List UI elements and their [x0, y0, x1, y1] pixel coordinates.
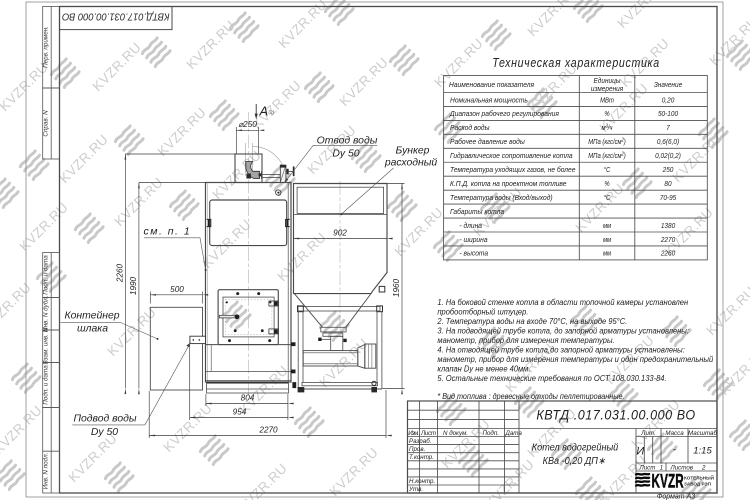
- svg-text:Пров.: Пров.: [409, 446, 425, 453]
- svg-text:804: 804: [241, 394, 255, 403]
- svg-text:500: 500: [170, 285, 184, 294]
- svg-text:мм: мм: [603, 236, 611, 244]
- svg-text:KVZR.RU: KVZR.RU: [0, 403, 45, 457]
- svg-text:KVZR.RU: KVZR.RU: [704, 284, 750, 338]
- svg-text:- высота: - высота: [459, 249, 488, 257]
- svg-text:Температура уходящих газов, не: Температура уходящих газов, не более: [450, 166, 575, 174]
- svg-text:Справ. N: Справ. N: [43, 110, 50, 137]
- svg-text:Техническая характеристика: Техническая характеристика: [492, 56, 660, 70]
- svg-text:Dy 50: Dy 50: [91, 427, 118, 438]
- svg-text:(2): (2): [269, 110, 275, 115]
- svg-text:Формат А3: Формат А3: [657, 494, 695, 500]
- svg-text:Масса: Масса: [665, 430, 684, 437]
- svg-text:Наименование показателя: Наименование показателя: [449, 81, 534, 89]
- svg-text:KVZR.RU: KVZR.RU: [184, 18, 238, 72]
- svg-text:50-100: 50-100: [658, 111, 678, 119]
- svg-text:Контейнер: Контейнер: [64, 311, 119, 322]
- svg-text:70-95: 70-95: [660, 195, 677, 203]
- svg-text:Номинальная мощность: Номинальная мощность: [450, 96, 528, 104]
- svg-text:KVZR.RU: KVZR.RU: [573, 181, 627, 235]
- svg-text:Бункер: Бункер: [396, 146, 430, 157]
- svg-text:°С: °С: [604, 193, 611, 202]
- svg-text:Взам. инв. N: Взам. инв. N: [43, 327, 50, 364]
- svg-text:Н.контр.: Н.контр.: [409, 478, 435, 485]
- svg-text:расходный: расходный: [384, 158, 437, 169]
- svg-text:Лит.: Лит.: [640, 430, 656, 437]
- svg-text:KVZR.RU: KVZR.RU: [0, 280, 34, 334]
- svg-text:Габариты котла: Габариты котла: [450, 208, 504, 216]
- svg-text:- длина: - длина: [459, 221, 482, 229]
- svg-text:Подвод воды: Подвод воды: [73, 414, 136, 425]
- svg-text:2270: 2270: [660, 236, 675, 244]
- svg-text:4. На отводящей трубе котла,д: 4. На отводящей трубе котла,до запорной …: [437, 345, 684, 354]
- svg-text:Температура воды (Вход/выход): Температура воды (Вход/выход): [450, 194, 553, 202]
- svg-text:КВа -0,20 ДП∗: КВа -0,20 ДП∗: [543, 456, 606, 468]
- svg-text:Отвод воды: Отвод воды: [317, 136, 378, 147]
- svg-text:Подп. и дата: Подп. и дата: [42, 255, 50, 295]
- svg-text:KVZR.RU: KVZR.RU: [337, 55, 391, 109]
- svg-text:KVZR.RU: KVZR.RU: [276, 0, 330, 51]
- svg-text:0,02(0,2): 0,02(0,2): [655, 153, 681, 161]
- svg-text:KVZR.RU: KVZR.RU: [236, 461, 290, 500]
- svg-text:1380: 1380: [661, 222, 675, 230]
- svg-text:шлака: шлака: [77, 324, 108, 335]
- svg-text:Диапазон рабочего регулировани: Диапазон рабочего регулирования: [449, 110, 559, 118]
- svg-text:KVZR.RU: KVZR.RU: [57, 132, 111, 186]
- svg-text:Масштаб: Масштаб: [688, 430, 717, 437]
- svg-text:KVZR.RU: KVZR.RU: [275, 230, 329, 284]
- svg-text:КВТД .017.031.00.000 ВО: КВТД .017.031.00.000 ВО: [536, 407, 695, 423]
- svg-text:KVZR.RU: KVZR.RU: [155, 105, 209, 159]
- svg-text:- ширина: - ширина: [459, 235, 487, 243]
- svg-text:Расход воды: Расход воды: [450, 124, 490, 132]
- svg-text:МВт: МВт: [600, 97, 614, 105]
- svg-text:Котел водогрейный: Котел водогрейный: [532, 442, 619, 454]
- svg-text:2270: 2270: [258, 426, 278, 435]
- svg-text:Dy 50: Dy 50: [332, 149, 359, 160]
- svg-text:мм: мм: [603, 250, 611, 258]
- svg-text:2260: 2260: [116, 263, 125, 283]
- svg-text:Рабочее давление воды: Рабочее давление воды: [450, 138, 525, 146]
- svg-text:Перв. примен.: Перв. примен.: [43, 26, 50, 68]
- svg-text:KVZR.RU: KVZR.RU: [317, 336, 371, 390]
- svg-text:7: 7: [666, 125, 671, 133]
- svg-text:KVZR.RU: KVZR.RU: [327, 445, 381, 499]
- svg-text:N докум.: N докум.: [443, 430, 468, 437]
- svg-text:2: 2: [701, 464, 706, 471]
- svg-text:KVZR.RU: KVZR.RU: [17, 200, 71, 254]
- svg-text:250: 250: [662, 167, 674, 175]
- svg-text:Инв. N подл.: Инв. N подл.: [42, 453, 50, 490]
- svg-text:КВТД.017.031.00.000 ВО: КВТД.017.031.00.000 ВО: [62, 10, 170, 22]
- svg-text:KVZR.RU: KVZR.RU: [200, 217, 254, 271]
- svg-text:МПа (кгс/см2): МПа (кгс/см2): [588, 137, 626, 146]
- svg-text:Подп. и дата: Подп. и дата: [42, 365, 50, 405]
- svg-text:измерения: измерения: [591, 86, 624, 94]
- svg-text:0,20: 0,20: [662, 97, 675, 105]
- svg-text:KVZR.RU: KVZR.RU: [66, 431, 120, 485]
- svg-text:2. Температура воды на входе: 2. Температура воды на входе 70°С, на вы…: [436, 317, 627, 326]
- svg-text:954: 954: [233, 408, 247, 417]
- svg-text:КОТЕЛЬНЫЙ: КОТЕЛЬНЫЙ: [684, 474, 714, 481]
- svg-text:0,6(6,0): 0,6(6,0): [657, 139, 679, 147]
- svg-text:Дата: Дата: [505, 430, 523, 437]
- svg-text:И: И: [636, 446, 644, 458]
- svg-text:Утв.: Утв.: [408, 486, 423, 493]
- svg-text:1:15: 1:15: [693, 446, 712, 457]
- svg-text:2260: 2260: [660, 250, 675, 258]
- svg-text:-: -: [673, 445, 676, 456]
- svg-text:Изм.: Изм.: [408, 430, 419, 437]
- svg-text:1990: 1990: [129, 276, 138, 295]
- svg-text:KVZR: KVZR: [652, 471, 684, 493]
- svg-text:К.П.Д. котла на проектном топл: К.П.Д. котла на проектном топливе: [450, 180, 567, 188]
- svg-text:5. Остальные технические треб: 5. Остальные технические требования по О…: [437, 373, 666, 382]
- svg-text:Значение: Значение: [654, 82, 682, 90]
- svg-text:МПа (кгс/см2): МПа (кгс/см2): [588, 151, 626, 160]
- svg-text:пробоотборный штуцер.: пробоотборный штуцер.: [437, 307, 528, 316]
- svg-text:ЗАВОД РЭП: ЗАВОД РЭП: [684, 482, 711, 487]
- svg-text:1960: 1960: [392, 278, 401, 297]
- svg-text:манометр, прибор для измерени: манометр, прибор для измерения температу…: [437, 355, 713, 364]
- svg-text:Лист: Лист: [420, 430, 436, 437]
- svg-text:Подп.: Подп.: [483, 430, 499, 437]
- svg-text:Т.контр.: Т.контр.: [409, 454, 434, 461]
- svg-text:902: 902: [333, 228, 347, 237]
- svg-text:80: 80: [664, 181, 671, 189]
- svg-text:м3/ч: м3/ч: [602, 123, 613, 132]
- svg-text:Инв. N дубл.: Инв. N дубл.: [42, 295, 50, 331]
- svg-text:3. На подводящей трубе котла,: 3. На подводящей трубе котла, до запорно…: [437, 326, 689, 335]
- svg-text:см. п. 1: см. п. 1: [144, 226, 192, 238]
- svg-text:манометр, прибор для измерения: манометр, прибор для измерения температу…: [437, 336, 614, 345]
- svg-text:KVZR.RU: KVZR.RU: [250, 78, 304, 132]
- svg-text:KVZR.RU: KVZR.RU: [615, 0, 669, 31]
- svg-text:KVZR.RU: KVZR.RU: [90, 40, 144, 94]
- svg-text:мм: мм: [603, 222, 611, 230]
- svg-text:KVZR.RU: KVZR.RU: [717, 344, 750, 398]
- svg-text:⌀250: ⌀250: [238, 120, 257, 129]
- svg-text:Гидравлическое сопротивление к: Гидравлическое сопротивление котла: [450, 152, 573, 160]
- svg-text:1. На боковой стенке котла в: 1. На боковой стенке котла в области топ…: [437, 298, 688, 307]
- svg-text:А: А: [259, 104, 269, 119]
- svg-text:клапан Dу не менее 40мм.: клапан Dу не менее 40мм.: [437, 364, 530, 373]
- svg-text:Единицы: Единицы: [593, 77, 621, 86]
- svg-text:%: %: [604, 180, 609, 188]
- svg-text:°С: °С: [604, 165, 611, 174]
- svg-text:* Вид топлива : древесные от: * Вид топлива : древесные отходы пеллети…: [437, 391, 624, 401]
- svg-text:%: %: [604, 111, 609, 119]
- svg-text:Разраб.: Разраб.: [409, 438, 431, 445]
